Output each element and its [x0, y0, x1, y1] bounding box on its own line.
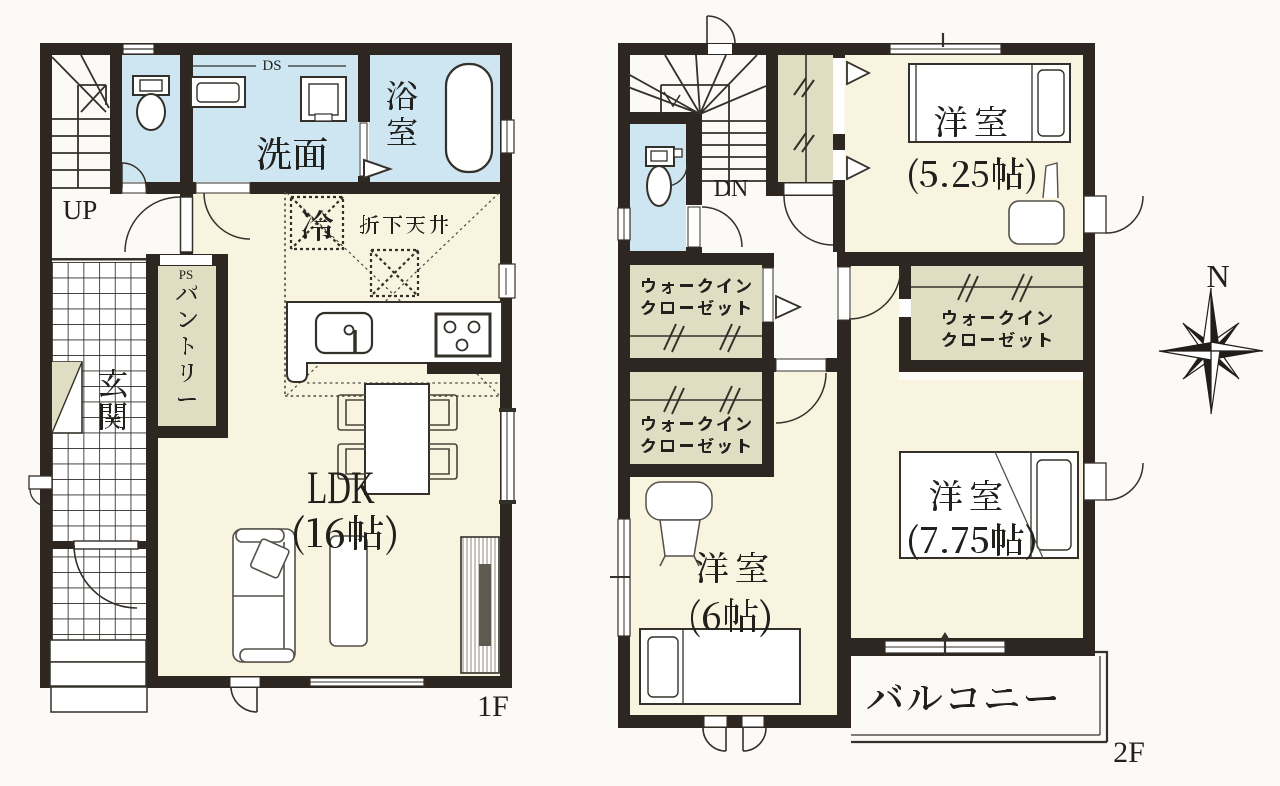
- svg-text:DN: DN: [714, 176, 749, 202]
- svg-text:1F: 1F: [477, 690, 509, 723]
- svg-text:N: N: [1206, 258, 1229, 294]
- svg-text:2F: 2F: [1113, 736, 1145, 769]
- svg-text:LDK: LDK: [307, 461, 375, 513]
- svg-text:PS: PS: [179, 267, 193, 282]
- svg-text:DS: DS: [262, 58, 281, 74]
- svg-text:UP: UP: [63, 195, 98, 225]
